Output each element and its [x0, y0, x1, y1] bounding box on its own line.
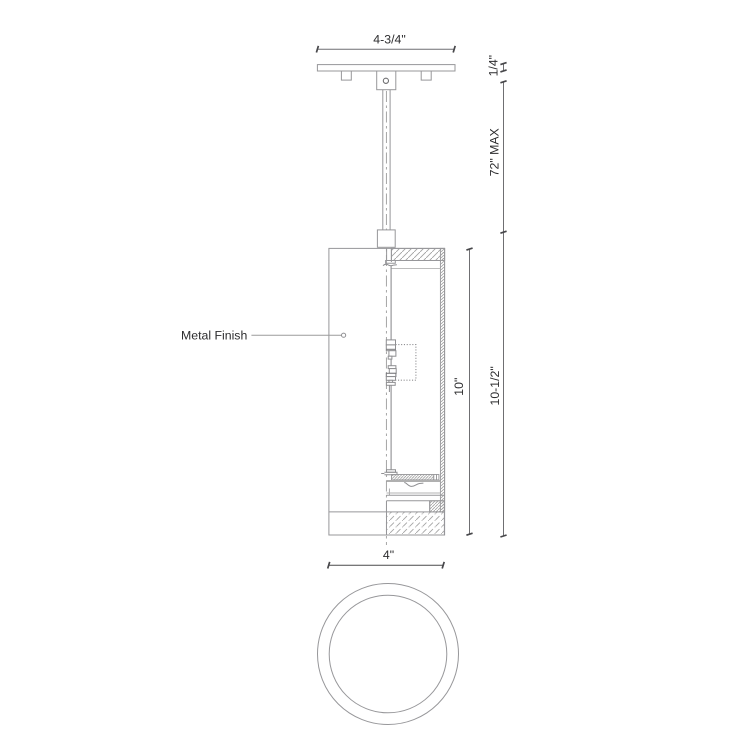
svg-text:4-3/4": 4-3/4": [373, 33, 405, 47]
svg-text:Metal Finish: Metal Finish: [181, 329, 247, 343]
svg-text:72" MAX: 72" MAX: [487, 128, 501, 176]
svg-text:1/4": 1/4": [487, 55, 501, 76]
svg-text:10": 10": [452, 378, 466, 396]
svg-text:10-1/2": 10-1/2": [488, 366, 502, 405]
svg-text:4": 4": [383, 548, 394, 562]
